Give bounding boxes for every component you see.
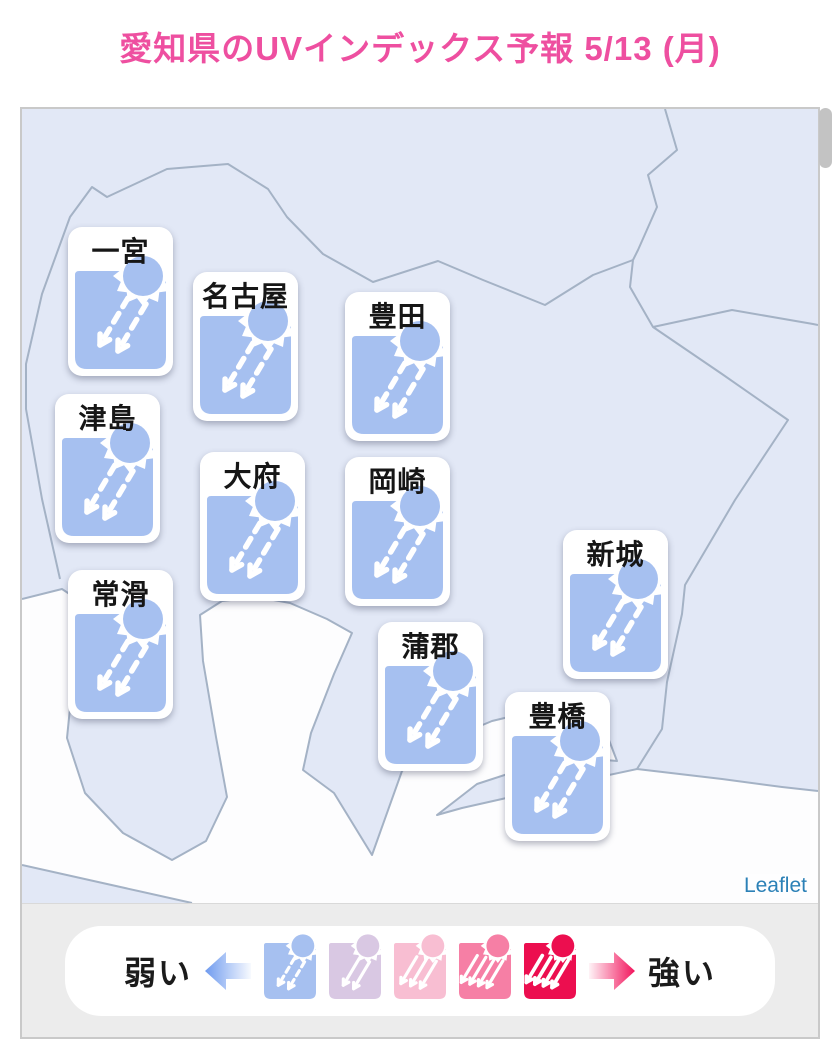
city-label: 岡崎: [352, 463, 443, 501]
city-card[interactable]: 常滑: [68, 570, 173, 719]
city-label: 津島: [62, 400, 153, 438]
uv-level-1-icon: [512, 736, 603, 834]
strong-label: 強い: [648, 948, 716, 994]
uv-legend: 弱い 強い: [65, 926, 775, 1016]
legend-strip: 弱い 強い: [22, 904, 818, 1037]
legend-scale: [264, 943, 576, 999]
uv-level-1-icon: [200, 316, 291, 414]
city-label: 常滑: [75, 576, 166, 614]
uv-level-5-icon: [524, 943, 576, 999]
city-card[interactable]: 津島: [55, 394, 160, 543]
weak-label: 弱い: [124, 948, 192, 994]
city-label: 大府: [207, 458, 298, 496]
city-card[interactable]: 岡崎: [345, 457, 450, 606]
uv-level-4-icon: [459, 943, 511, 999]
uv-forecast-widget: Leaflet 一宮名古屋豊田津島大府岡崎新城常滑蒲郡豊橋 弱い 強い: [20, 107, 820, 1039]
page-title: 愛知県のUVインデックス予報 5/13 (月): [0, 22, 840, 70]
uv-level-1-icon: [75, 271, 166, 369]
uv-icon: [352, 501, 443, 599]
uv-level-3-icon: [394, 943, 446, 999]
city-label: 一宮: [75, 233, 166, 271]
city-card[interactable]: 蒲郡: [378, 622, 483, 771]
strong-arrow-icon: [589, 950, 635, 992]
uv-icon: [385, 666, 476, 764]
city-card[interactable]: 名古屋: [193, 272, 298, 421]
uv-level-1-icon: [385, 666, 476, 764]
uv-level-1-icon: [352, 501, 443, 599]
uv-icon: [62, 438, 153, 536]
city-label: 蒲郡: [385, 628, 476, 666]
uv-icon: [352, 336, 443, 434]
city-label: 豊橋: [512, 698, 603, 736]
uv-level-1-icon: [75, 614, 166, 712]
uv-level-1-icon: [264, 943, 316, 999]
map-canvas[interactable]: Leaflet 一宮名古屋豊田津島大府岡崎新城常滑蒲郡豊橋: [22, 109, 818, 904]
city-card[interactable]: 豊田: [345, 292, 450, 441]
leaflet-attribution[interactable]: Leaflet: [741, 874, 810, 898]
uv-level-1-icon: [62, 438, 153, 536]
city-label: 名古屋: [200, 278, 291, 316]
scrollbar-thumb[interactable]: [819, 108, 832, 168]
uv-icon: [512, 736, 603, 834]
city-label: 新城: [570, 536, 661, 574]
city-card[interactable]: 豊橋: [505, 692, 610, 841]
uv-icon: [75, 614, 166, 712]
uv-icon: [207, 496, 298, 594]
uv-level-1-icon: [352, 336, 443, 434]
city-card[interactable]: 一宮: [68, 227, 173, 376]
city-label: 豊田: [352, 298, 443, 336]
city-card[interactable]: 大府: [200, 452, 305, 601]
weak-arrow-icon: [205, 950, 251, 992]
uv-level-1-icon: [207, 496, 298, 594]
uv-level-2-icon: [329, 943, 381, 999]
city-card[interactable]: 新城: [563, 530, 668, 679]
uv-icon: [200, 316, 291, 414]
uv-icon: [75, 271, 166, 369]
uv-icon: [570, 574, 661, 672]
uv-level-1-icon: [570, 574, 661, 672]
